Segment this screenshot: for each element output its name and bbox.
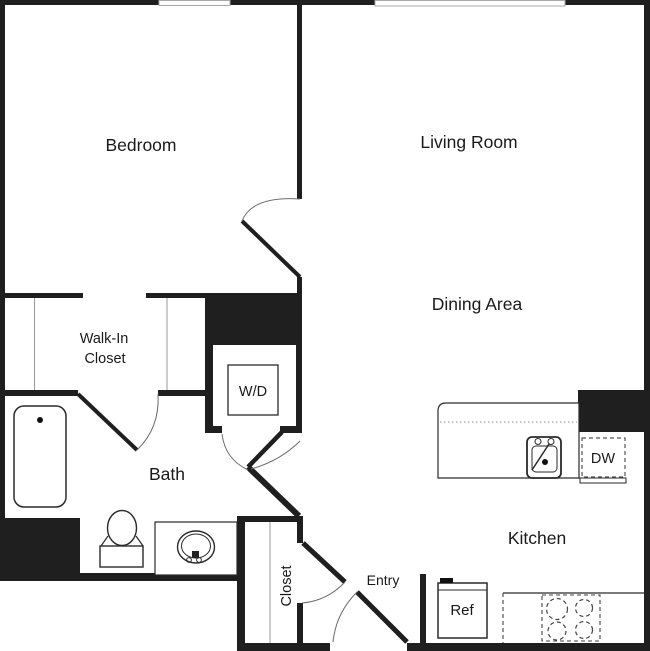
wall-block-above-wd — [205, 298, 302, 345]
label-bedroom: Bedroom — [105, 135, 176, 155]
dishwasher-front-panel — [580, 478, 626, 483]
top-wall-left — [0, 0, 159, 5]
bedroom-south-wall-west — [0, 293, 83, 298]
label-washer-dryer: W/D — [239, 384, 267, 400]
wd-opening-left-stub — [205, 426, 222, 433]
label-kitchen: Kitchen — [508, 528, 566, 548]
bedroom-window — [159, 1, 230, 6]
wd-closet-right-wall — [296, 345, 302, 428]
burner-top-left — [547, 599, 568, 620]
label-living-room: Living Room — [420, 132, 517, 152]
bottom-wall-closet — [237, 643, 330, 651]
bath-sink-faucet — [192, 551, 199, 558]
wd-opening-right-stub — [280, 426, 302, 433]
burner-top-right — [576, 600, 593, 617]
closet-right-wall-upper — [297, 522, 303, 543]
closet-door-leaf — [303, 543, 345, 582]
label-refrigerator: Ref — [450, 602, 474, 619]
top-wall-right — [565, 0, 650, 5]
label-walk-in-closet-line1: Walk-In — [80, 331, 129, 347]
kitchen-sink-drain — [542, 459, 548, 465]
refrigerator-handle — [440, 578, 453, 583]
bedroom-door-arc — [242, 199, 300, 221]
label-walk-in-closet-line2: Closet — [84, 351, 125, 367]
bedroom-door-leaf — [242, 221, 300, 277]
exterior-walls — [0, 0, 650, 651]
closet-top-wall — [237, 516, 303, 522]
label-dining-area: Dining Area — [432, 294, 523, 314]
bedroom-south-wall-east — [146, 293, 302, 298]
entry-door-arc — [333, 592, 357, 642]
bathtub-drain — [37, 417, 43, 423]
toilet-bowl — [108, 511, 137, 546]
interior-walls — [0, 0, 645, 651]
bedroom-living-divider-upper — [297, 0, 302, 199]
bath-north-wall-west — [0, 390, 78, 396]
closet-right-wall-lower — [297, 603, 303, 651]
label-entry: Entry — [367, 572, 400, 588]
burner-bottom-right — [576, 622, 593, 639]
label-bath: Bath — [149, 464, 185, 484]
entry-kitchen-divider — [420, 574, 426, 644]
bath-angled-wall-lower — [248, 467, 299, 516]
bath-angled-wall-upper — [248, 432, 282, 467]
kitchen-wall-block — [578, 390, 645, 432]
label-dishwasher: DW — [591, 451, 615, 467]
walk-in-closet-door-leaf — [78, 394, 137, 450]
floor-plan: Bedroom Living Room Dining Area Walk-In … — [0, 0, 650, 651]
walk-in-closet-door-arc — [137, 394, 158, 450]
bath-north-wall-east — [158, 390, 206, 396]
closet-left-wall — [237, 516, 245, 651]
left-wall — [0, 0, 5, 581]
label-closet: Closet — [279, 565, 295, 606]
toilet-tank — [100, 546, 143, 567]
bottom-wall-right — [407, 643, 650, 651]
tub-surround-block — [0, 518, 80, 575]
burner-bottom-left — [548, 622, 566, 640]
wd-closet-left-wall — [205, 345, 213, 433]
wd-door-arc — [222, 434, 248, 470]
toilet-seat-right — [136, 536, 143, 546]
entry-door-leaf — [357, 592, 407, 642]
living-room-window — [375, 1, 565, 7]
top-wall-middle — [230, 0, 375, 5]
closet-door-arc — [302, 582, 345, 603]
toilet-seat-left — [101, 536, 108, 546]
right-wall — [644, 0, 650, 651]
